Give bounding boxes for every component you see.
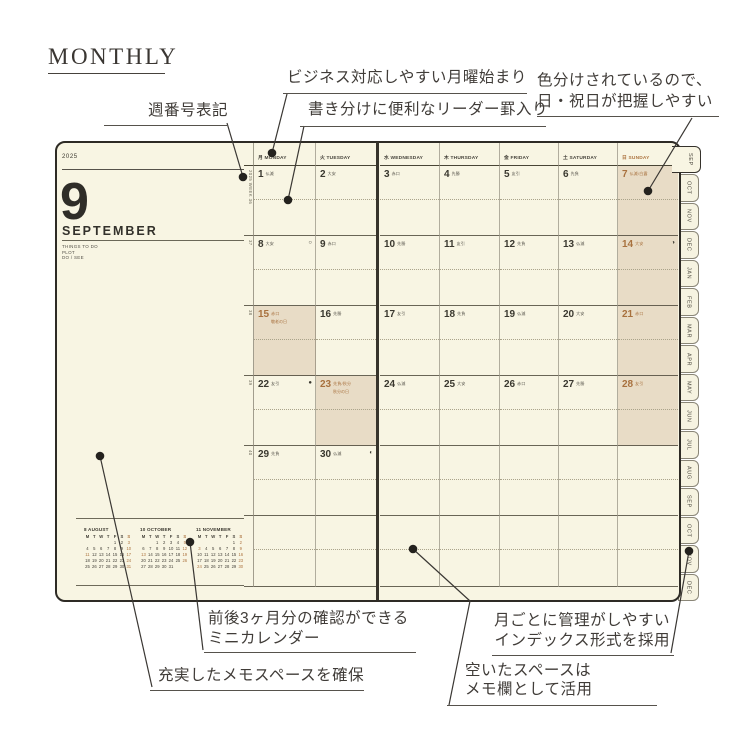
memo-area-rule-top <box>76 518 244 519</box>
empty-day-cell <box>440 516 500 587</box>
annotation-index-tabs: 月ごとに管理がしやすい インデックス形式を採用 <box>492 611 674 656</box>
leader-dotted-rule <box>254 269 315 270</box>
index-tab-oct: OCT <box>678 174 699 202</box>
month-name-rule <box>62 240 244 241</box>
leader-dotted-rule <box>254 199 315 200</box>
day-cell-27: 27先勝 <box>559 376 618 446</box>
holiday-label: 秋分の日 <box>333 390 373 395</box>
day-cell-6: 6先負 <box>559 166 618 236</box>
day-cell-17: 17友引 <box>380 306 440 376</box>
day-cell-16: 16先勝 <box>316 306 377 376</box>
leader-dotted-rule <box>559 339 617 340</box>
leader-dotted-rule <box>500 479 558 480</box>
week-number: 40 <box>244 446 254 516</box>
day-cell-2: 2大安 <box>316 166 377 236</box>
leader-dotted-rule <box>316 339 376 340</box>
book-spine <box>376 142 379 600</box>
month-number: 9 <box>60 176 89 228</box>
leader-dotted-rule <box>500 409 558 410</box>
day-cell-25: 25大安 <box>440 376 500 446</box>
day-cell-13: 13仏滅 <box>559 236 618 306</box>
day-cell-18: 18先負 <box>440 306 500 376</box>
leader-dotted-rule <box>380 269 439 270</box>
leader-dotted-rule <box>618 479 678 480</box>
day-header-wednesday: 水 WEDNESDAY <box>380 143 440 166</box>
day-cell-28: 28友引 <box>618 376 678 446</box>
day-cell-29: 29先負 <box>254 446 316 516</box>
leader-dotted-rule <box>316 479 376 480</box>
leader-dotted-rule <box>618 549 678 550</box>
day-cell-3: 3赤口 <box>380 166 440 236</box>
page-title: MONTHLY <box>48 44 165 74</box>
mini-calendar-title: 11 NOVEMBER <box>196 527 248 532</box>
week-number: 37 <box>244 236 254 306</box>
day-cell-24: 24仏滅 <box>380 376 440 446</box>
empty-day-cell <box>618 446 678 516</box>
week-number: 39 <box>244 376 254 446</box>
index-tab-aug: AUG <box>678 460 699 488</box>
product-diagram: MONTHLY 週番号表記 ビジネス対応しやすい月曜始まり 書き分けに便利なリー… <box>0 0 750 750</box>
empty-day-cell <box>618 516 678 587</box>
leader-dotted-rule <box>254 409 315 410</box>
index-tab-mar: MAR <box>678 317 699 345</box>
day-cell-11: 11友引 <box>440 236 500 306</box>
index-tab-jan: JAN <box>678 260 699 288</box>
leader-dotted-rule <box>559 199 617 200</box>
mini-calendar-august: 8 AUGUSTMTWTFSS1234567891011121314151617… <box>84 527 136 570</box>
day-cell-30: 30仏滅◐ <box>316 446 377 516</box>
mini-calendar-november: 11 NOVEMBERMTWTFSS1234567891011121314151… <box>196 527 248 570</box>
leader-dotted-rule <box>380 409 439 410</box>
leader-dotted-rule <box>500 199 558 200</box>
leader-dotted-rule <box>618 199 678 200</box>
mini-cal-day: 27 <box>217 564 224 570</box>
mini-cal-day: 26 <box>91 564 98 570</box>
week-col-header <box>244 143 254 166</box>
mini-cal-blank <box>174 564 181 570</box>
empty-day-cell <box>380 516 440 587</box>
day-cell-5: 5友引 <box>500 166 559 236</box>
day-cell-1: 1仏滅 <box>254 166 316 236</box>
mini-cal-blank <box>181 564 188 570</box>
mini-cal-day: 31 <box>168 564 175 570</box>
mini-cal-day: 28 <box>224 564 231 570</box>
empty-day-cell <box>316 516 377 587</box>
index-tab-nov-2: NOV <box>678 545 699 573</box>
index-tab-dec: DEC <box>678 231 699 259</box>
index-tab-feb: FEB <box>678 288 699 316</box>
leader-dotted-rule <box>380 199 439 200</box>
mini-cal-day: 27 <box>140 564 147 570</box>
annotation-color-coded: 色分けされているので、 日・祝日が把握しやすい <box>537 70 719 117</box>
empty-day-cell <box>254 516 316 587</box>
leader-dotted-rule <box>500 269 558 270</box>
mini-cal-day: 28 <box>147 564 154 570</box>
index-tab-sep: SEP <box>672 146 701 174</box>
leader-dotted-rule <box>440 199 499 200</box>
mini-cal-day: 29 <box>112 564 119 570</box>
empty-day-cell <box>559 516 618 587</box>
index-tab-apr: APR <box>678 345 699 373</box>
day-header-saturday: 土 SATURDAY <box>559 143 618 166</box>
moon-phase-icon: ◐ <box>369 449 373 457</box>
holiday-label: 敬老の日 <box>271 320 312 325</box>
empty-day-cell <box>500 516 559 587</box>
mini-cal-day: 29 <box>154 564 161 570</box>
week-number: 38 <box>244 306 254 376</box>
day-cell-4: 4先勝 <box>440 166 500 236</box>
week-number: 2025 WEEK 36 <box>244 166 254 236</box>
index-tab-jul: JUL <box>678 431 699 459</box>
index-tab-jun: JUN <box>678 402 699 430</box>
leader-dotted-rule <box>316 269 376 270</box>
memo-area-rule-bottom <box>76 585 244 586</box>
index-tab-sep-2: SEP <box>678 488 699 516</box>
mini-cal-day: 24 <box>196 564 203 570</box>
day-header-monday: 月 MONDAY <box>254 143 316 166</box>
day-cell-26: 26赤口 <box>500 376 559 446</box>
day-header-sunday: 日 SUNDAY <box>618 143 678 166</box>
moon-phase-icon: ◑ <box>671 239 675 247</box>
month-name: SEPTEMBER <box>62 224 158 238</box>
day-cell-10: 10先勝 <box>380 236 440 306</box>
day-cell-12: 12先負 <box>500 236 559 306</box>
mini-cal-day: 30 <box>161 564 168 570</box>
calendar-grid: 月 MONDAY火 TUESDAY水 WEDNESDAY木 THURSDAY金 … <box>244 143 678 587</box>
moon-phase-icon: ● <box>308 379 312 387</box>
leader-dotted-rule <box>500 339 558 340</box>
leader-dotted-rule <box>316 549 376 550</box>
leader-dotted-rule <box>316 409 376 410</box>
mini-calendar-october: 10 OCTOBERMTWTFSS12345678910111213141516… <box>140 527 192 570</box>
mini-cal-day: 25 <box>84 564 91 570</box>
mini-cal-day: 30 <box>118 564 125 570</box>
index-tab-may: MAY <box>678 374 699 402</box>
leader-dotted-rule <box>254 549 315 550</box>
mini-cal-day: 29 <box>230 564 237 570</box>
empty-day-cell <box>380 446 440 516</box>
leader-dotted-rule <box>440 409 499 410</box>
day-cell-23: 23先負/秋分秋分の日 <box>316 376 377 446</box>
leader-dotted-rule <box>254 479 315 480</box>
leader-dotted-rule <box>618 269 678 270</box>
day-cell-15: 15赤口敬老の日 <box>254 306 316 376</box>
year-label: 2025 <box>62 154 78 160</box>
day-cell-22: 22友引● <box>254 376 316 446</box>
day-header-thursday: 木 THURSDAY <box>440 143 500 166</box>
mini-cal-day: 25 <box>203 564 210 570</box>
leader-dotted-rule <box>316 199 376 200</box>
leader-dotted-rule <box>380 339 439 340</box>
leader-dotted-rule <box>559 409 617 410</box>
day-cell-19: 19仏滅 <box>500 306 559 376</box>
leader-dotted-rule <box>440 549 499 550</box>
mini-cal-day: 30 <box>237 564 244 570</box>
leader-dotted-rule <box>254 339 315 340</box>
empty-day-cell <box>559 446 618 516</box>
leader-dotted-rule <box>440 339 499 340</box>
annotation-empty-space: 空いたスペースは メモ欄として活用 <box>447 662 657 706</box>
leader-dotted-rule <box>440 479 499 480</box>
mini-cal-day: 27 <box>98 564 105 570</box>
day-cell-14: 14大安◑ <box>618 236 678 306</box>
mini-cal-day: 31 <box>125 564 132 570</box>
empty-day-cell <box>500 446 559 516</box>
day-cell-21: 21赤口 <box>618 306 678 376</box>
leader-dotted-rule <box>500 549 558 550</box>
leader-dotted-rule <box>618 409 678 410</box>
leader-dotted-rule <box>440 269 499 270</box>
mini-cal-day: 26 <box>210 564 217 570</box>
index-tab-dec-2: DEC <box>678 574 699 602</box>
leader-dotted-rule <box>559 269 617 270</box>
day-cell-8: 8大安○ <box>254 236 316 306</box>
day-header-tuesday: 火 TUESDAY <box>316 143 377 166</box>
mini-calendar-title: 10 OCTOBER <box>140 527 192 532</box>
mini-calendar-title: 8 AUGUST <box>84 527 136 532</box>
leader-dotted-rule <box>618 339 678 340</box>
annotation-monday-start: ビジネス対応しやすい月曜始まり <box>283 68 527 94</box>
annotation-mini-calendar: 前後3ヶ月分の確認ができる ミニカレンダー <box>204 609 416 653</box>
index-tab-oct-2: OCT <box>678 517 699 545</box>
moon-phase-icon: ○ <box>308 239 312 247</box>
month-subtitle: THINGS TO DO PLOT DO / SEE <box>62 244 98 261</box>
day-cell-20: 20大安 <box>559 306 618 376</box>
annotation-leader-lines: 書き分けに便利なリーダー罫入り <box>300 100 546 127</box>
day-cell-9: 9赤口 <box>316 236 377 306</box>
index-tab-nov: NOV <box>678 203 699 231</box>
day-cell-7: 7仏滅/白露 <box>618 166 678 236</box>
leader-dotted-rule <box>559 479 617 480</box>
mini-cal-day: 28 <box>105 564 112 570</box>
empty-day-cell <box>440 446 500 516</box>
leader-dotted-rule <box>559 549 617 550</box>
leader-dotted-rule <box>380 479 439 480</box>
day-header-friday: 金 FRIDAY <box>500 143 559 166</box>
leader-dotted-rule <box>380 549 439 550</box>
left-page-rule-top <box>62 169 244 170</box>
annotation-memo-space: 充実したメモスペースを確保 <box>150 666 364 691</box>
annotation-week-number: 週番号表記 <box>104 101 228 126</box>
